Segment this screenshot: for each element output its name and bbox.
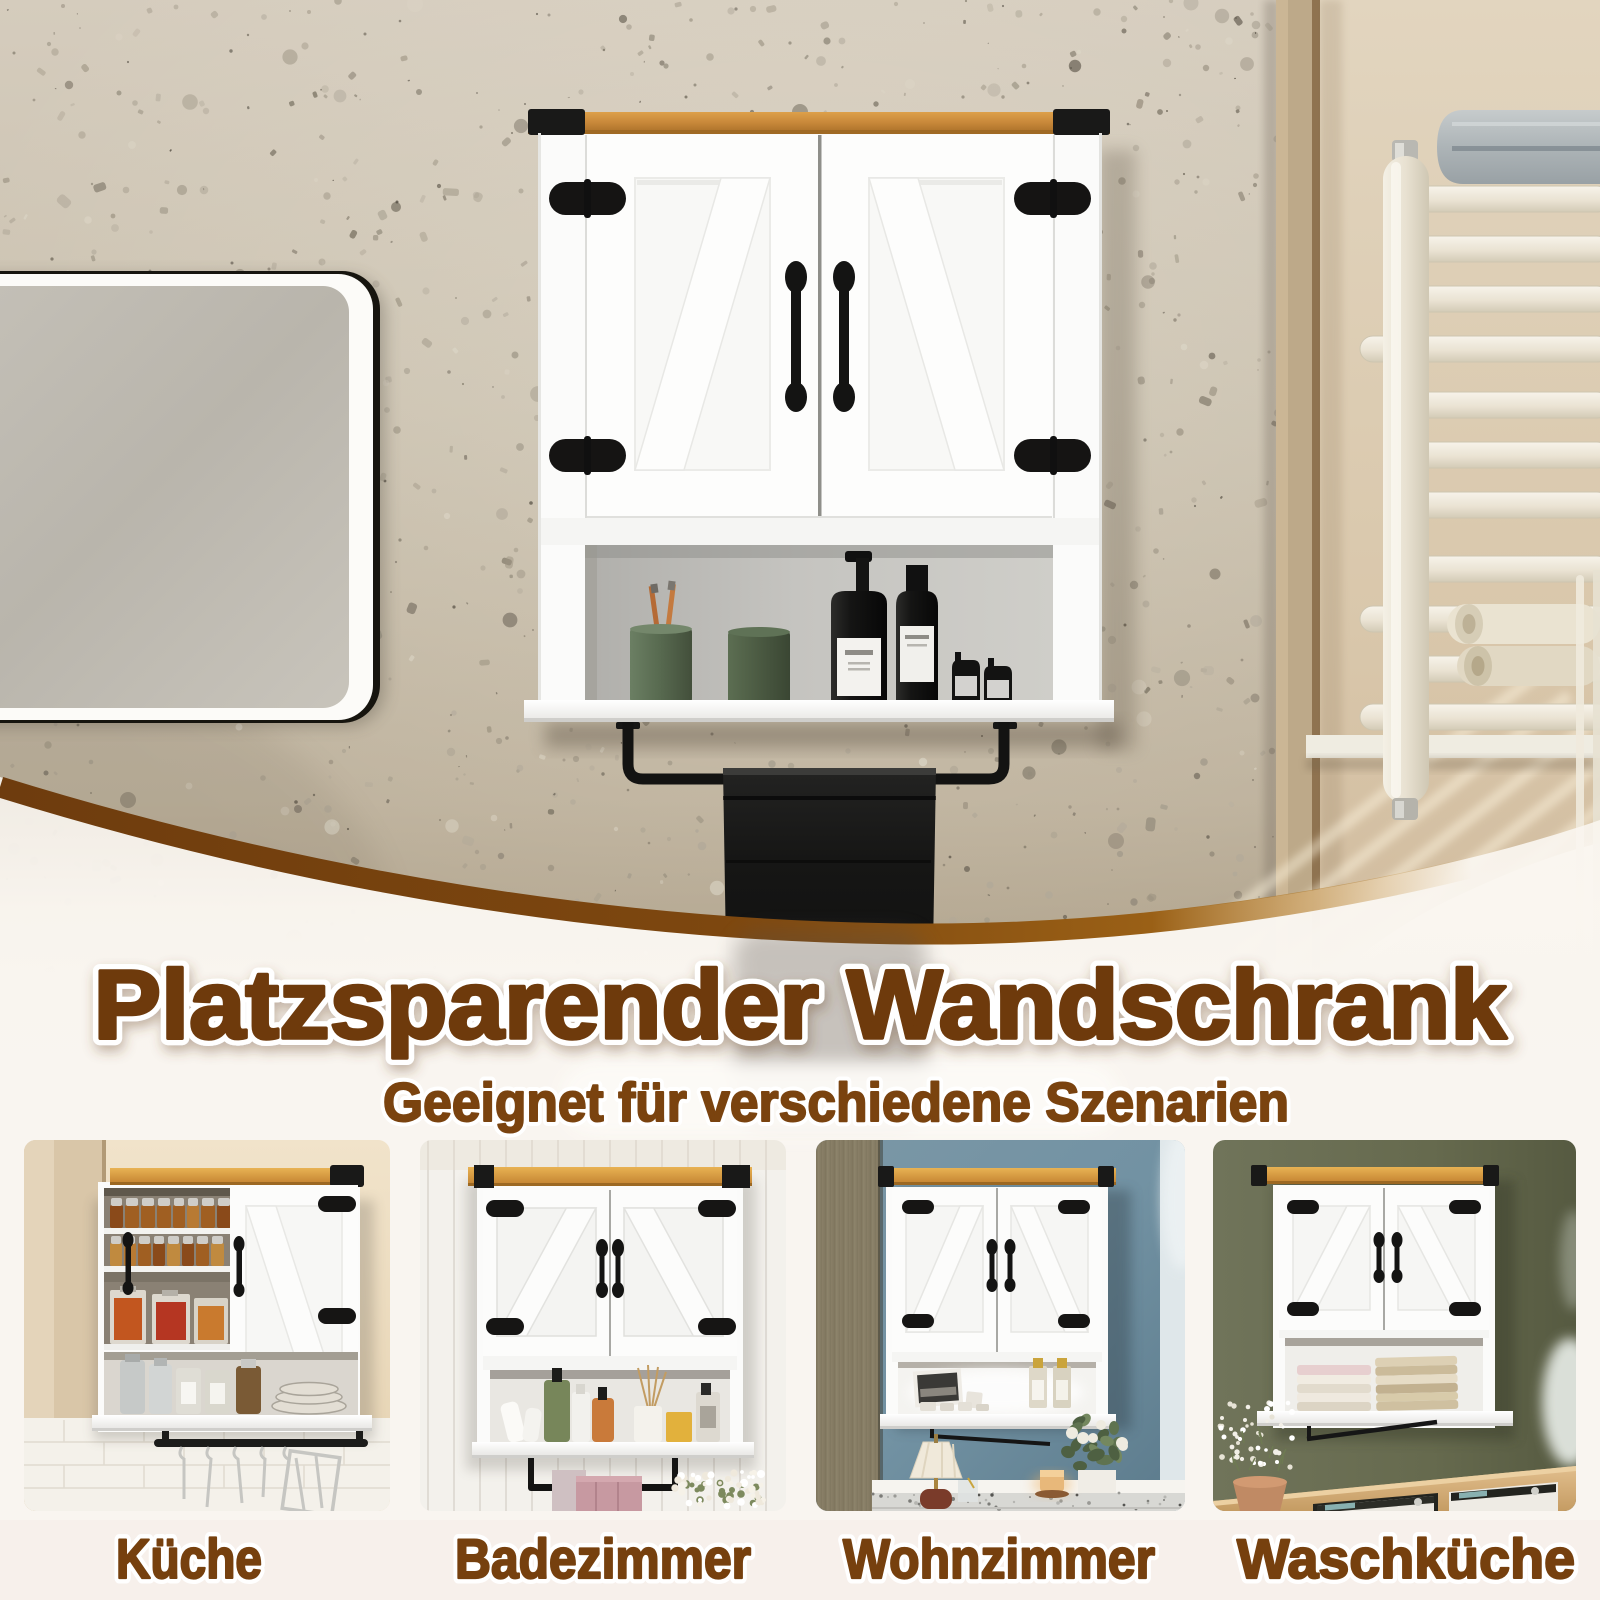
svg-text:Badezimmer: Badezimmer: [455, 1527, 751, 1590]
svg-text:Waschküche: Waschküche: [1237, 1527, 1575, 1590]
svg-text:Küche: Küche: [116, 1527, 262, 1590]
svg-text:Wohnzimmer: Wohnzimmer: [843, 1527, 1155, 1590]
